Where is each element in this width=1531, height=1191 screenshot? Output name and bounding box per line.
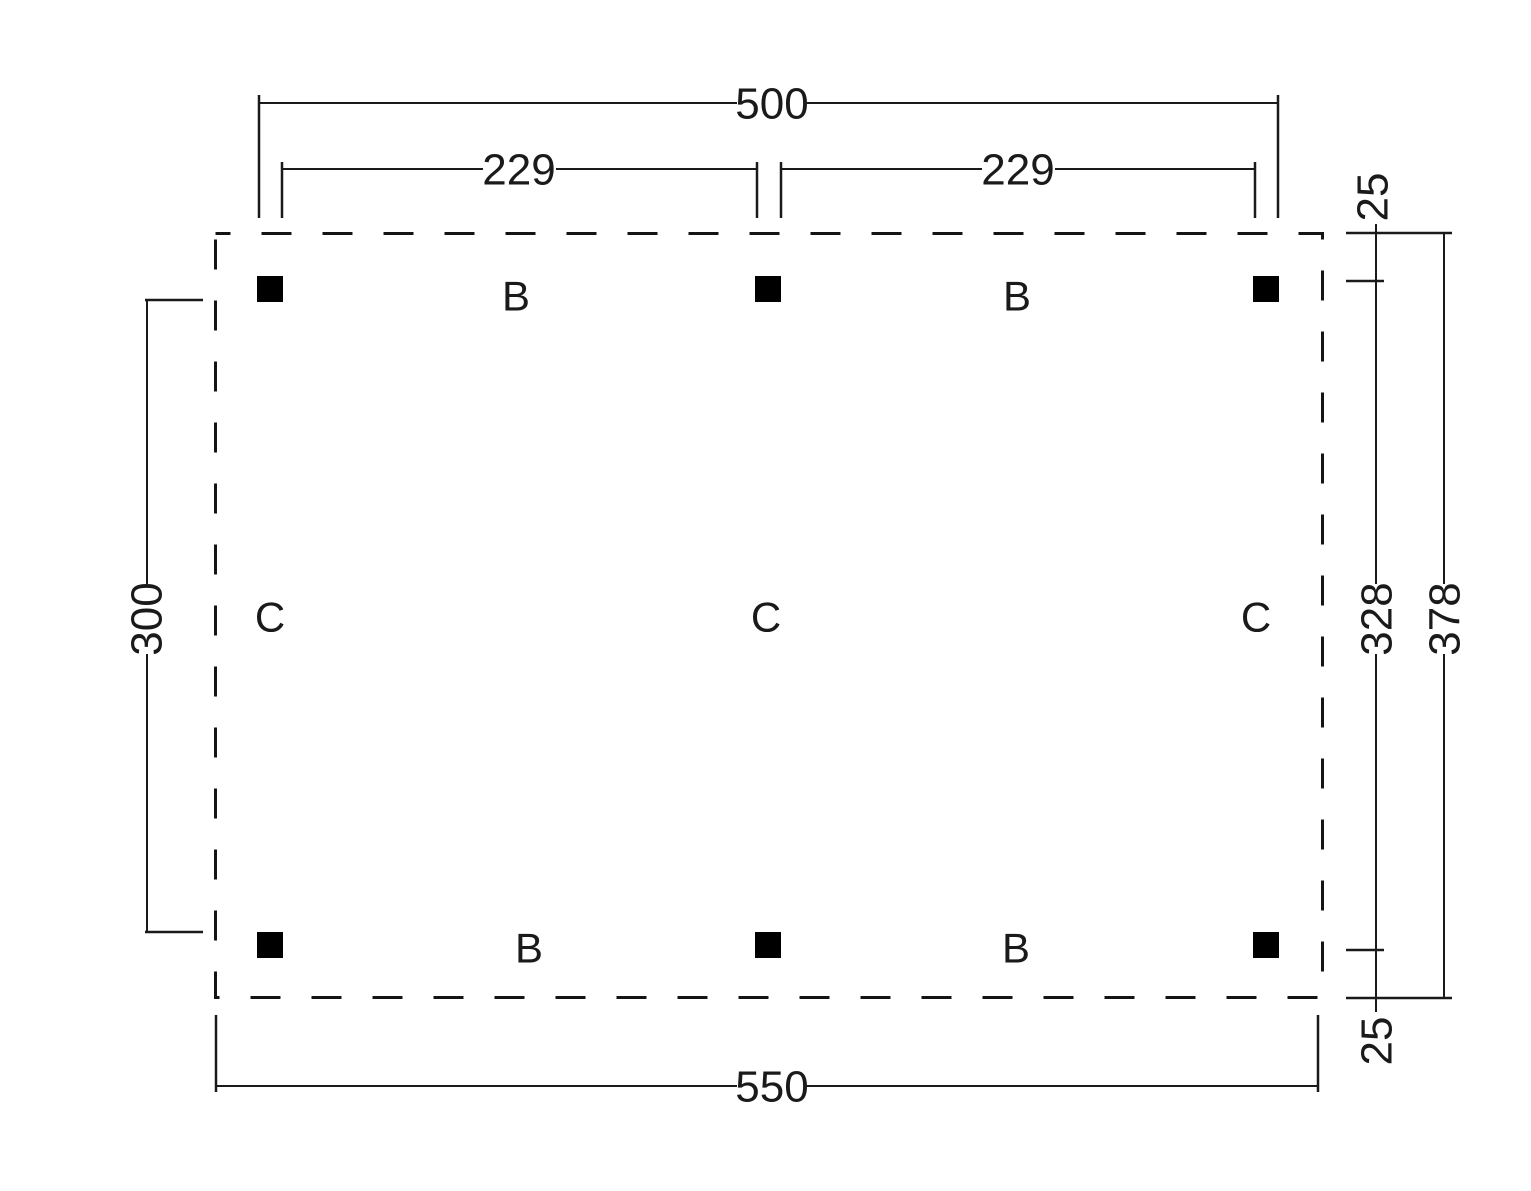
dim-top-overall: 500 [259,79,1278,218]
post-marker-top-left [257,276,283,302]
dim-label-right-post-span: 328 [1352,582,1401,655]
dim-right-offset-top: 25 [1348,173,1397,222]
beam-label-bottom-right: B [1002,925,1030,972]
post-marker-bottom-right [1253,932,1279,958]
floor-plan-drawing: B B B B C C C 500 229 229 378 [0,0,1531,1191]
dim-label-bottom-overall: 550 [735,1062,808,1111]
beam-label-top-right: B [1003,273,1031,320]
column-label-left: C [255,594,285,641]
dim-label-top-overall: 500 [735,79,808,128]
column-label-center: C [751,594,781,641]
beam-label-bottom-left: B [515,925,543,972]
dim-label-right-offset-top: 25 [1348,173,1397,222]
dim-label-top-bay-right: 229 [981,145,1054,194]
beam-label-top-left: B [502,273,530,320]
dim-label-left-post-clearance: 300 [122,582,171,655]
dim-right-offset-bottom: 25 [1352,1017,1401,1066]
dim-right-post-span: 328 [1346,224,1401,1012]
drawing-canvas: B B B B C C C 500 229 229 378 [0,0,1531,1191]
post-marker-top-center [755,276,781,302]
post-marker-bottom-center [755,932,781,958]
dim-label-top-bay-left: 229 [482,145,555,194]
dim-top-bay-left: 229 [282,145,757,218]
dim-top-bay-right: 229 [781,145,1255,218]
post-marker-bottom-left [257,932,283,958]
column-labels: C C C [255,594,1271,641]
post-marker-top-right [1253,276,1279,302]
dim-left-post-clearance: 300 [122,300,203,932]
dim-bottom-overall: 550 [216,1015,1318,1111]
dim-label-right-offset-bottom: 25 [1352,1017,1401,1066]
dim-label-right-overall: 378 [1420,582,1469,655]
column-label-right: C [1241,594,1271,641]
